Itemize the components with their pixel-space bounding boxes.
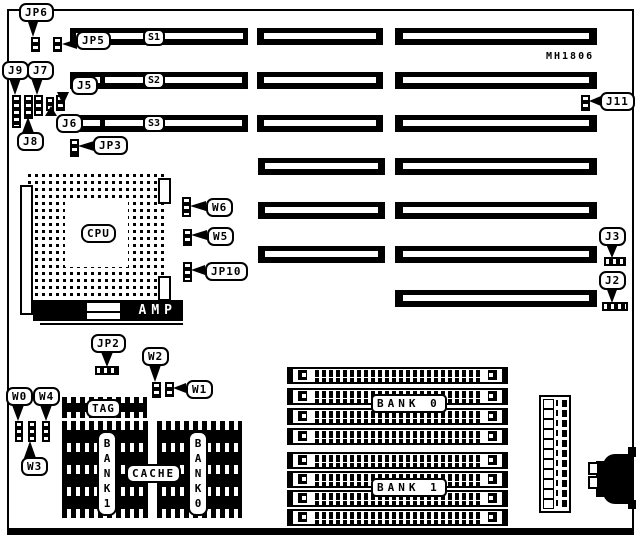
- callout-tail: [190, 201, 206, 211]
- label-j7: J7: [27, 61, 54, 80]
- callout-tail: [57, 92, 69, 105]
- motherboard-diagram: S1 S2 S3 MH1806 JP6 JP5 J9 J7 J5 J: [0, 0, 640, 538]
- label-j2: J2: [599, 271, 626, 290]
- label-jp5: JP5: [76, 31, 111, 50]
- jumper-j8: [24, 95, 33, 119]
- cpu-side-connector: [20, 185, 33, 315]
- slot-stripe: [265, 163, 378, 169]
- label-jp2: JP2: [91, 334, 126, 353]
- slot-stripe: [403, 163, 589, 169]
- power-connector: [539, 395, 571, 513]
- slot-stripe: [403, 77, 589, 83]
- isa-slot-segment: [258, 246, 385, 263]
- isa-slot-segment: [258, 202, 385, 219]
- keyboard-connector: [628, 500, 636, 509]
- slot-stripe: [403, 207, 589, 213]
- isa-slot-segment: [257, 115, 383, 132]
- label-cache: CACHE: [126, 464, 181, 483]
- slot-stripe: [265, 251, 378, 257]
- label-w2: W2: [142, 347, 169, 366]
- jumper-j7: [34, 95, 43, 116]
- label-j11: J11: [600, 92, 635, 111]
- label-j9: J9: [2, 61, 29, 80]
- slot-stripe: [403, 295, 589, 301]
- callout-tail: [22, 117, 34, 133]
- keyboard-connector-pin: [588, 476, 599, 489]
- simm-slot: [287, 428, 508, 445]
- slot-stripe: [403, 251, 589, 257]
- amp-socket-bar: AMP: [33, 300, 183, 321]
- isa-slot-segment: [395, 28, 597, 45]
- slot-label-s2: S2: [143, 72, 165, 89]
- label-j5: J5: [71, 76, 98, 95]
- socket-tab: [158, 178, 171, 204]
- label-j8: J8: [17, 132, 44, 151]
- label-tag: TAG: [86, 399, 121, 418]
- slot-label-s1: S1: [143, 29, 165, 46]
- callout-tail: [40, 405, 52, 421]
- jumper-jp5: [53, 37, 62, 52]
- slot-stripe: [105, 120, 242, 126]
- label-cache-bank1: BANK1: [97, 431, 117, 516]
- label-w3: W3: [21, 457, 48, 476]
- isa-slot-segment: [257, 72, 383, 89]
- callout-tail: [606, 244, 618, 258]
- jumper-w0: [15, 421, 23, 442]
- isa-slot-segment: [395, 246, 597, 263]
- amp-bar-window: [87, 303, 120, 311]
- slot-stripe: [403, 33, 589, 39]
- label-jp10: JP10: [205, 262, 248, 281]
- slot-stripe: [82, 120, 100, 126]
- label-w4: W4: [33, 387, 60, 406]
- label-w1: W1: [186, 380, 213, 399]
- label-w5: W5: [207, 227, 234, 246]
- callout-tail: [24, 441, 36, 458]
- amp-bar-window: [87, 313, 120, 319]
- callout-tail: [12, 405, 24, 421]
- isa-slot-segment: [395, 202, 597, 219]
- slot-stripe: [264, 120, 376, 126]
- keyboard-connector: [603, 454, 632, 504]
- label-jp6: JP6: [19, 3, 54, 22]
- isa-slot-segment: [395, 158, 597, 175]
- amp-brand-text: AMP: [139, 303, 177, 318]
- power-connector-pins: [562, 400, 567, 508]
- slot-stripe: [265, 207, 378, 213]
- jumper-w2: [152, 382, 161, 398]
- callout-tail: [191, 230, 207, 240]
- isa-slot-segment: [395, 290, 597, 307]
- isa-slot-segment: [257, 28, 383, 45]
- callout-tail: [173, 383, 186, 393]
- label-mem-bank1: BANK 1: [371, 478, 447, 497]
- callout-tail: [9, 78, 21, 95]
- label-jp3: JP3: [93, 136, 128, 155]
- label-w0: W0: [6, 387, 33, 406]
- jumper-j9: [12, 95, 21, 128]
- simm-slot: [287, 509, 508, 526]
- callout-tail: [31, 78, 43, 95]
- jumper-j3: [604, 257, 626, 266]
- label-cpu: CPU: [81, 224, 116, 243]
- board-bottom-edge: [7, 528, 632, 534]
- socket-tab: [158, 276, 171, 301]
- jumper-w3: [28, 421, 36, 442]
- isa-slot-segment: [395, 115, 597, 132]
- callout-tail: [149, 365, 161, 382]
- jumper-j2: [602, 302, 628, 311]
- label-w6: W6: [206, 198, 233, 217]
- slot-label-s3: S3: [143, 115, 165, 132]
- label-cache-bank0: BANK0: [188, 431, 208, 516]
- board-model-text: MH1806: [546, 51, 594, 62]
- slot-stripe: [264, 77, 376, 83]
- slot-stripe: [403, 120, 589, 126]
- callout-tail: [78, 141, 94, 151]
- jumper-jp6: [31, 37, 40, 52]
- isa-slot-segment: [395, 72, 597, 89]
- isa-slot-segment: [258, 158, 385, 175]
- power-connector-pin-column: [543, 399, 554, 509]
- jumper-w4: [42, 421, 50, 442]
- callout-tail: [101, 352, 113, 367]
- keyboard-connector-pin: [588, 462, 599, 475]
- slot-stripe: [105, 77, 242, 83]
- label-mem-bank0: BANK 0: [371, 394, 447, 413]
- slot-stripe: [264, 33, 376, 39]
- simm-slot: [287, 367, 508, 384]
- amp-bar-underline: [40, 323, 183, 325]
- label-j6: J6: [56, 114, 83, 133]
- callout-tail: [62, 39, 77, 49]
- label-j3: J3: [599, 227, 626, 246]
- jumper-jp2: [95, 366, 119, 375]
- callout-tail: [45, 106, 57, 116]
- simm-slot: [287, 452, 508, 469]
- power-connector-divider: [556, 400, 558, 508]
- callout-tail: [191, 265, 205, 275]
